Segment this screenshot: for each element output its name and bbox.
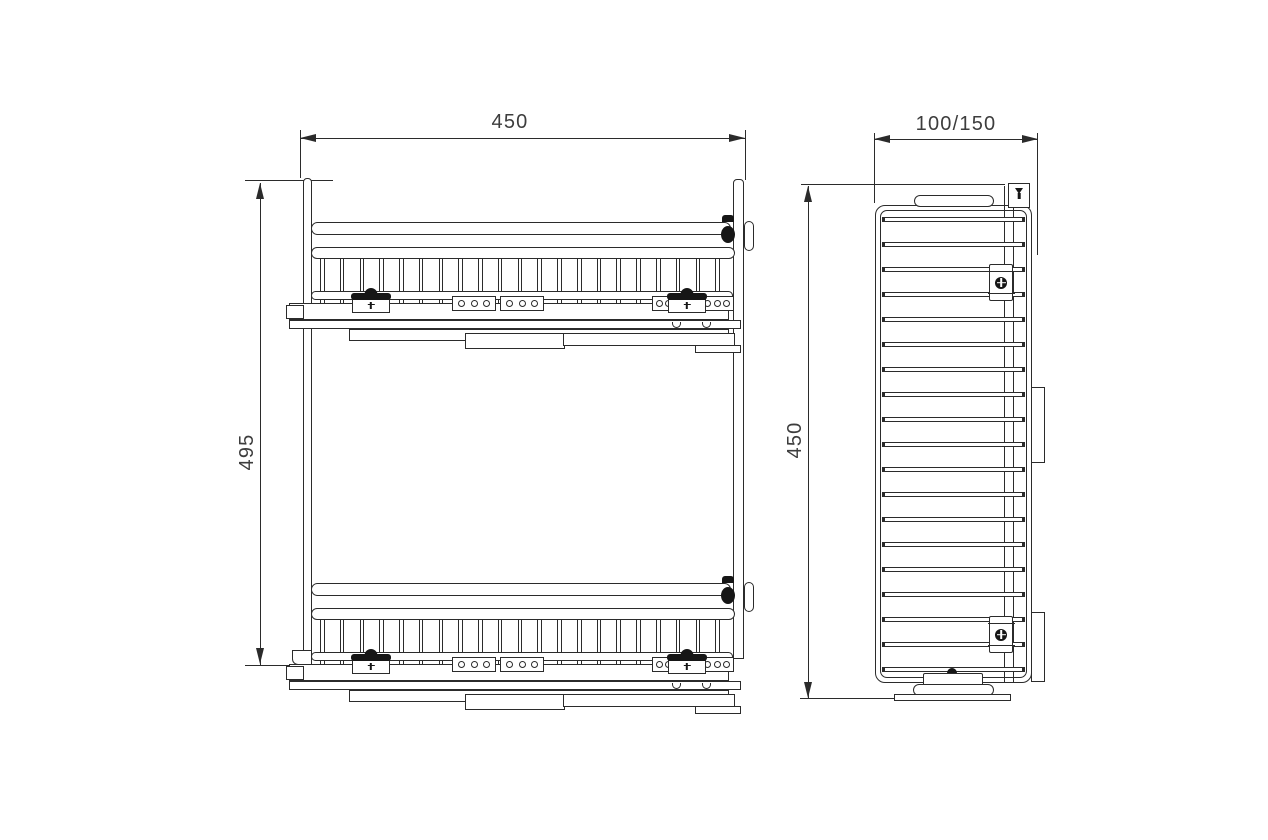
- side-height-dimension-line: [808, 186, 809, 698]
- screw-icon: [370, 663, 372, 670]
- extension-line: [745, 130, 746, 180]
- extension-line: [801, 184, 1005, 185]
- side-rung: [882, 417, 1025, 422]
- side-rung: [882, 367, 1025, 372]
- side-rung: [882, 217, 1025, 222]
- plate-hole: [506, 300, 513, 307]
- side-rung: [882, 517, 1025, 522]
- arrow-up-icon: [804, 186, 812, 202]
- rail-knob: [721, 226, 735, 243]
- side-rung: [882, 242, 1025, 247]
- screw-icon: [370, 302, 372, 309]
- screw-icon: [686, 663, 688, 670]
- plate-hole: [483, 661, 490, 668]
- side-width-dimension-line: [874, 139, 1038, 140]
- upper-right-clamp: [668, 299, 706, 313]
- rail-hook-tab: [722, 576, 734, 583]
- arrow-up-icon: [256, 183, 264, 199]
- lower-slide-end-block: [695, 706, 741, 714]
- technical-drawing-canvas: 450 495: [0, 0, 1268, 840]
- left-rail-foot: [292, 650, 312, 665]
- rail-hook-tab: [722, 215, 734, 222]
- arrow-left-icon: [874, 135, 890, 143]
- lower-basket-top-rail: [311, 583, 731, 596]
- upper-center-plate-right: [500, 296, 544, 311]
- front-width-dimension-line: [300, 138, 746, 139]
- plate-hole: [723, 300, 730, 307]
- plate-hole: [531, 300, 538, 307]
- clamp-bump: [681, 288, 694, 295]
- arrow-right-icon: [729, 134, 745, 142]
- plate-hole: [714, 300, 721, 307]
- plate-hole: [458, 300, 465, 307]
- extension-line: [300, 130, 301, 178]
- upper-center-plate-left: [452, 296, 496, 311]
- rail-hook-plate: [1008, 183, 1030, 208]
- screw-icon: [686, 302, 688, 309]
- front-height-dimension-label: 495: [237, 412, 257, 492]
- plate-hole: [531, 661, 538, 668]
- plate-hole: [714, 661, 721, 668]
- lower-basket-second-rail: [311, 608, 735, 620]
- lower-center-plate-left: [452, 657, 496, 672]
- rail-knob: [721, 587, 735, 604]
- upper-slide-inner-cap: [465, 333, 565, 349]
- plate-hole: [723, 661, 730, 668]
- lower-right-clamp: [668, 660, 706, 674]
- side-rung: [882, 567, 1025, 572]
- arrow-down-icon: [804, 682, 812, 698]
- side-rung: [882, 492, 1025, 497]
- lower-left-clamp: [352, 660, 390, 674]
- outer-bracket: [744, 582, 754, 612]
- screw-icon: [995, 629, 1007, 641]
- clamp-bump: [365, 649, 378, 656]
- side-rung: [882, 442, 1025, 447]
- side-upper-tab: [1031, 387, 1045, 463]
- upper-front-stop: [286, 305, 304, 319]
- plate-hole: [519, 300, 526, 307]
- clamp-bump: [365, 288, 378, 295]
- extension-line: [245, 180, 333, 181]
- side-upper-clamp: [989, 264, 1013, 301]
- plate-hole: [506, 661, 513, 668]
- foot-base-plate: [894, 694, 1011, 701]
- lower-front-stop: [286, 666, 304, 680]
- screw-icon: [995, 277, 1007, 289]
- extension-line: [874, 133, 875, 203]
- side-rung: [882, 542, 1025, 547]
- upper-slide-end-block: [695, 345, 741, 353]
- lower-center-plate-right: [500, 657, 544, 672]
- side-rung: [882, 392, 1025, 397]
- side-rung: [882, 342, 1025, 347]
- plate-hole: [656, 661, 663, 668]
- plate-hole: [483, 300, 490, 307]
- side-rung: [882, 317, 1025, 322]
- side-rung: [882, 467, 1025, 472]
- clamp-bump: [681, 649, 694, 656]
- arrow-right-icon: [1022, 135, 1038, 143]
- plate-hole: [656, 300, 663, 307]
- extension-line: [1037, 133, 1038, 255]
- screw-stem: [1018, 193, 1021, 199]
- side-lower-tab: [1031, 612, 1045, 682]
- front-width-dimension-label: 450: [450, 112, 570, 132]
- side-rung: [882, 592, 1025, 597]
- side-top-cap: [914, 195, 994, 207]
- upper-basket-top-rail: [311, 222, 731, 235]
- upper-left-clamp: [352, 299, 390, 313]
- side-lower-clamp: [989, 616, 1013, 653]
- arrow-down-icon: [256, 648, 264, 664]
- plate-hole: [519, 661, 526, 668]
- outer-bracket: [744, 221, 754, 251]
- plate-hole: [471, 300, 478, 307]
- plate-hole: [458, 661, 465, 668]
- lower-slide-inner-cap: [465, 694, 565, 710]
- front-height-dimension-line: [260, 183, 261, 665]
- side-width-dimension-label: 100/150: [896, 114, 1016, 134]
- arrow-left-icon: [300, 134, 316, 142]
- upper-basket-second-rail: [311, 247, 735, 259]
- plate-hole: [471, 661, 478, 668]
- side-height-dimension-label: 450: [785, 400, 805, 480]
